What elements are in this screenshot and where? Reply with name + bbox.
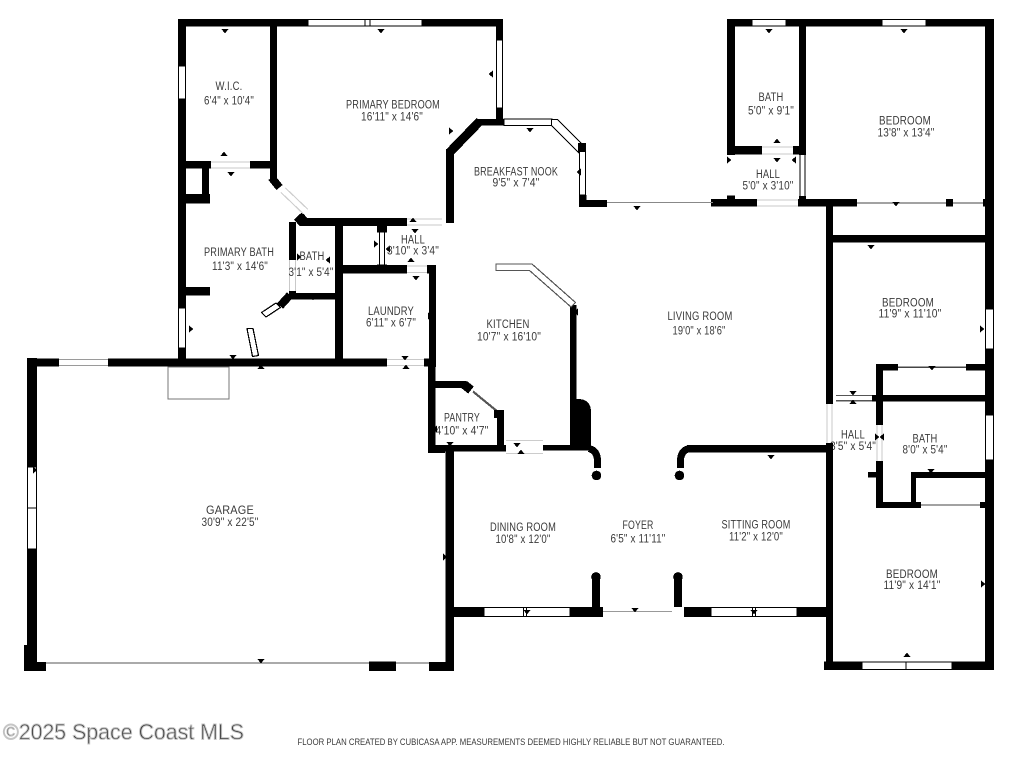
svg-text:6'11" x 6'7": 6'11" x 6'7" (366, 316, 416, 330)
svg-text:3'10" x 3'4": 3'10" x 3'4" (387, 244, 439, 258)
svg-text:LIVING ROOM: LIVING ROOM (668, 309, 733, 323)
svg-text:10'8" x 12'0": 10'8" x 12'0" (496, 532, 551, 546)
svg-text:9'5" x 7'4": 9'5" x 7'4" (493, 176, 540, 190)
svg-text:10'7" x 16'10": 10'7" x 16'10" (477, 330, 541, 344)
svg-text:13'8" x 13'4": 13'8" x 13'4" (878, 126, 935, 140)
svg-text:FLOOR PLAN CREATED BY CUBICASA: FLOOR PLAN CREATED BY CUBICASA APP. MEAS… (298, 737, 725, 748)
svg-text:PRIMARY BATH: PRIMARY BATH (204, 245, 274, 259)
svg-text:4'10" x 4'7": 4'10" x 4'7" (436, 424, 489, 438)
svg-text:11'2" x 12'0": 11'2" x 12'0" (729, 530, 783, 544)
svg-text:11'3" x 14'6": 11'3" x 14'6" (212, 259, 268, 273)
svg-text:8'0" x 5'4": 8'0" x 5'4" (903, 443, 948, 457)
svg-text:11'9" x 14'1": 11'9" x 14'1" (884, 578, 941, 592)
svg-text:FOYER: FOYER (623, 518, 654, 532)
svg-text:5'0" x 9'1": 5'0" x 9'1" (748, 104, 794, 118)
svg-text:3'1" x 5'4": 3'1" x 5'4" (289, 265, 334, 279)
svg-text:BATH: BATH (759, 90, 784, 104)
svg-text:6'5" x 11'11": 6'5" x 11'11" (611, 532, 666, 546)
svg-text:BATH: BATH (300, 249, 325, 263)
svg-text:PANTRY: PANTRY (444, 411, 480, 425)
svg-text:6'4" x 10'4": 6'4" x 10'4" (204, 94, 254, 108)
svg-text:11'9" x 11'10": 11'9" x 11'10" (879, 307, 942, 321)
svg-text:19'0" x 18'6": 19'0" x 18'6" (673, 324, 726, 338)
svg-text:W.I.C.: W.I.C. (216, 79, 243, 93)
svg-text:3'5" x 5'4": 3'5" x 5'4" (830, 439, 876, 453)
svg-text:5'0" x 3'10": 5'0" x 3'10" (743, 179, 794, 193)
svg-text:©2025 Space Coast MLS: ©2025 Space Coast MLS (3, 720, 244, 745)
svg-text:30'9" x 22'5": 30'9" x 22'5" (202, 515, 259, 529)
svg-text:16'11" x 14'6": 16'11" x 14'6" (361, 110, 423, 124)
